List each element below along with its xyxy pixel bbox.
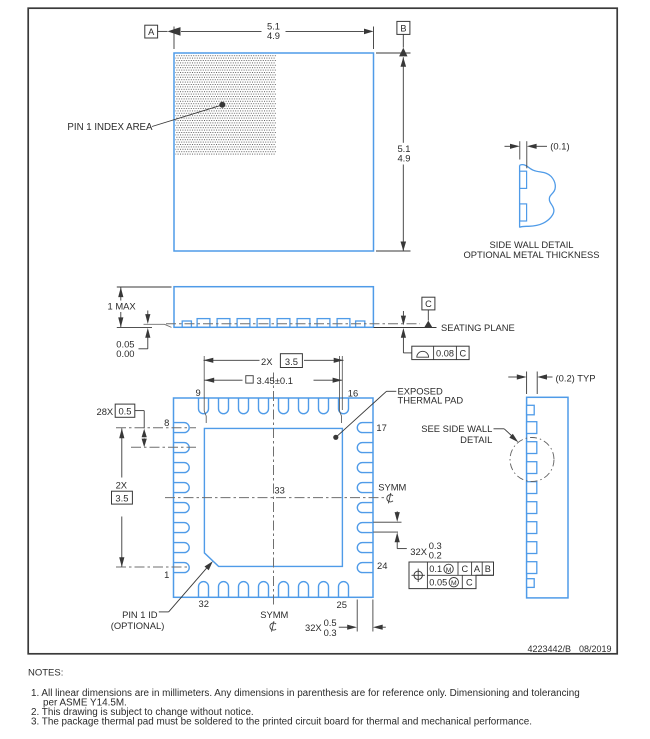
svg-text:4.9: 4.9 bbox=[267, 30, 280, 41]
svg-text:0.05: 0.05 bbox=[429, 578, 447, 588]
svg-text:PIN 1 INDEX AREA: PIN 1 INDEX AREA bbox=[67, 122, 153, 133]
svg-text:0.00: 0.00 bbox=[116, 348, 134, 359]
svg-text:17: 17 bbox=[376, 422, 386, 433]
svg-text:A: A bbox=[148, 27, 155, 37]
svg-text:3.5: 3.5 bbox=[115, 493, 128, 504]
svg-text:SEATING PLANE: SEATING PLANE bbox=[441, 322, 515, 333]
svg-text:33: 33 bbox=[274, 484, 284, 495]
svg-text:C: C bbox=[466, 578, 473, 588]
svg-text:PIN 1 ID: PIN 1 ID bbox=[122, 609, 158, 620]
svg-text:THERMAL PAD: THERMAL PAD bbox=[398, 394, 464, 405]
svg-text:B: B bbox=[400, 23, 406, 33]
svg-text:NOTES:: NOTES: bbox=[28, 667, 63, 678]
svg-text:32X: 32X bbox=[410, 546, 427, 557]
svg-text:SEE SIDE WALL: SEE SIDE WALL bbox=[421, 423, 492, 434]
svg-text:0.2: 0.2 bbox=[429, 550, 442, 561]
svg-text:4.9: 4.9 bbox=[397, 153, 410, 164]
svg-text:C: C bbox=[461, 564, 468, 574]
svg-text:24: 24 bbox=[377, 560, 387, 571]
svg-text:(OPTIONAL): (OPTIONAL) bbox=[111, 620, 165, 631]
svg-text:3. The package thermal pad mus: 3. The package thermal pad must be solde… bbox=[31, 717, 532, 728]
svg-text:16: 16 bbox=[348, 387, 358, 398]
svg-text:M: M bbox=[446, 567, 452, 574]
svg-text:B: B bbox=[485, 564, 491, 574]
svg-text:SYMM: SYMM bbox=[260, 609, 288, 620]
svg-text:0.08: 0.08 bbox=[436, 349, 454, 359]
svg-text:M: M bbox=[451, 580, 457, 587]
svg-text:32: 32 bbox=[199, 598, 209, 609]
svg-text:C: C bbox=[425, 299, 432, 309]
svg-text:2X: 2X bbox=[116, 479, 128, 490]
svg-text:C: C bbox=[459, 349, 466, 359]
svg-text:0.1: 0.1 bbox=[429, 564, 442, 574]
svg-text:9: 9 bbox=[195, 387, 200, 398]
svg-text:A: A bbox=[474, 564, 481, 574]
svg-text:1 MAX: 1 MAX bbox=[108, 301, 137, 312]
svg-text:08/2019: 08/2019 bbox=[579, 644, 612, 654]
svg-text:SYMM: SYMM bbox=[378, 482, 406, 493]
svg-text:(0.2) TYP: (0.2) TYP bbox=[556, 372, 596, 383]
svg-text:4223442/B: 4223442/B bbox=[527, 644, 571, 654]
svg-text:3.45±0.1: 3.45±0.1 bbox=[257, 375, 293, 386]
svg-text:25: 25 bbox=[337, 599, 347, 610]
svg-text:0.3: 0.3 bbox=[324, 627, 337, 638]
svg-text:0.5: 0.5 bbox=[118, 405, 131, 416]
svg-text:OPTIONAL METAL THICKNESS: OPTIONAL METAL THICKNESS bbox=[464, 249, 600, 260]
svg-text:DETAIL: DETAIL bbox=[460, 434, 492, 445]
svg-text:(0.1): (0.1) bbox=[550, 141, 569, 152]
svg-text:28X: 28X bbox=[97, 406, 114, 417]
svg-text:1: 1 bbox=[164, 569, 169, 580]
svg-text:3.5: 3.5 bbox=[285, 356, 298, 367]
svg-text:2X: 2X bbox=[261, 356, 273, 367]
svg-text:32X: 32X bbox=[305, 622, 322, 633]
svg-text:8: 8 bbox=[164, 417, 169, 428]
